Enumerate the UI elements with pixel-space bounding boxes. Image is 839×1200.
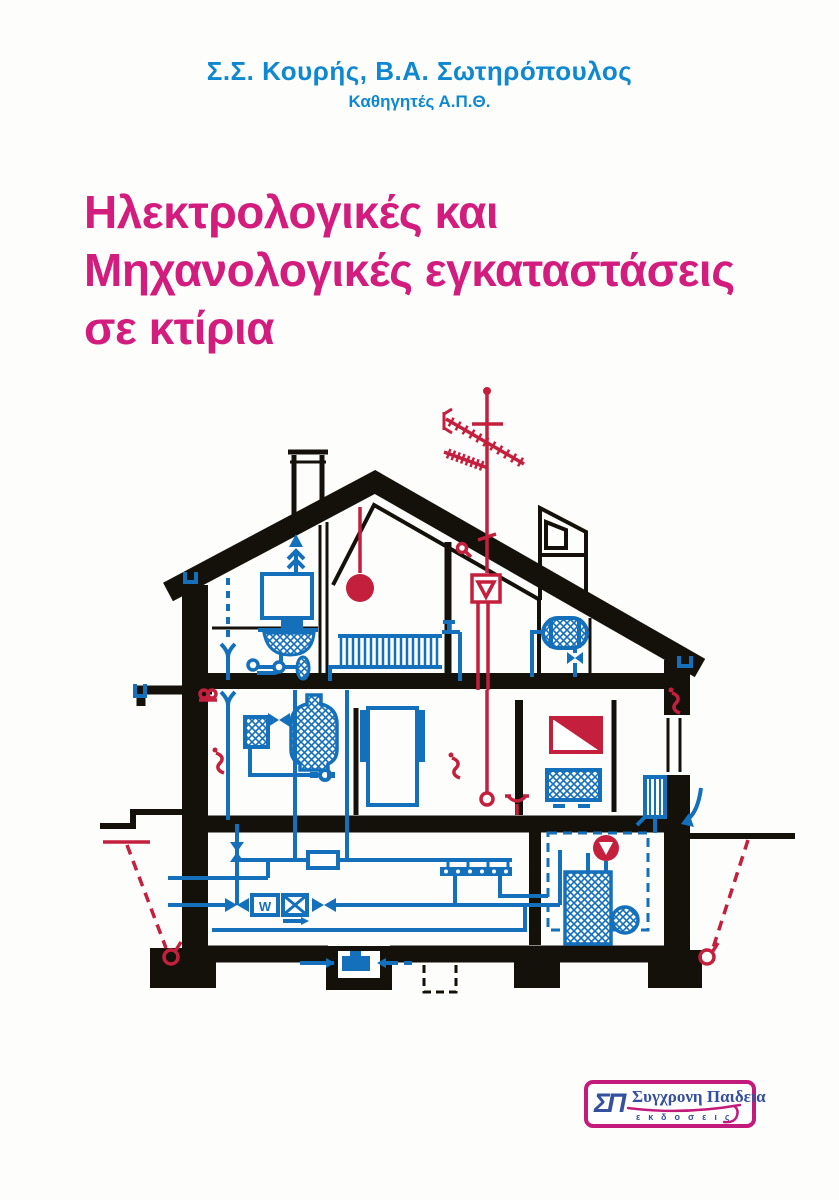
publisher-subtitle: εκδοσεις (636, 1112, 738, 1122)
attic-radiator (330, 622, 460, 681)
publisher-logo: ΣΠ Συγχρονη Παιδεια εκδοσεις (584, 1080, 756, 1128)
tv-outlet (481, 793, 493, 805)
basement-piping: W (168, 824, 560, 930)
wall-socket (199, 690, 217, 700)
roof (168, 482, 700, 668)
house-cross-section-diagram: W (0, 380, 839, 1020)
authors-subtitle: Καθηγητές Α.Π.Θ. (0, 92, 839, 112)
antenna-cable (478, 602, 493, 805)
authors-line: Σ.Σ. Κουρής, Β.Α. Σωτηρόπουλος (0, 56, 839, 87)
antenna-amplifier (472, 575, 500, 602)
title-line-3: σε κτίρια (84, 302, 274, 354)
title-line-1: Ηλεκτρολογικές και (84, 186, 498, 238)
footing-left (150, 948, 216, 988)
publisher-name: Συγχρονη Παιδεια (632, 1087, 766, 1107)
water-meter-label: W (259, 899, 272, 914)
light-switch-left (213, 748, 225, 774)
building-structure (100, 452, 795, 992)
boiler (565, 872, 611, 944)
book-cover: Σ.Σ. Κουρής, Β.Α. Σωτηρόπουλος Καθηγητές… (0, 0, 839, 1200)
light-switch-middle (449, 753, 461, 779)
title-line-2: Μηχανολογικές εγκαταστάσεις (84, 244, 735, 296)
water-tank (262, 574, 312, 628)
grounding-right (700, 840, 748, 964)
distribution-board (551, 718, 601, 752)
footing-right (648, 950, 702, 988)
publisher-monogram: ΣΠ (594, 1088, 623, 1119)
filter (308, 852, 338, 868)
circulation-pump (593, 835, 619, 861)
burner (612, 907, 638, 933)
future-pit-dashed (424, 958, 456, 992)
ground-line-left (100, 812, 182, 826)
footing-center (514, 950, 560, 988)
rain-drain-pipe (221, 578, 235, 820)
book-title: Ηλεκτρολογικές και Μηχανολογικές εγκατασ… (84, 184, 735, 358)
water-heater (291, 695, 337, 778)
door-frame (360, 708, 425, 805)
vent-pipe (288, 534, 304, 574)
washbasin (248, 630, 318, 679)
electric-appliance (547, 770, 600, 808)
